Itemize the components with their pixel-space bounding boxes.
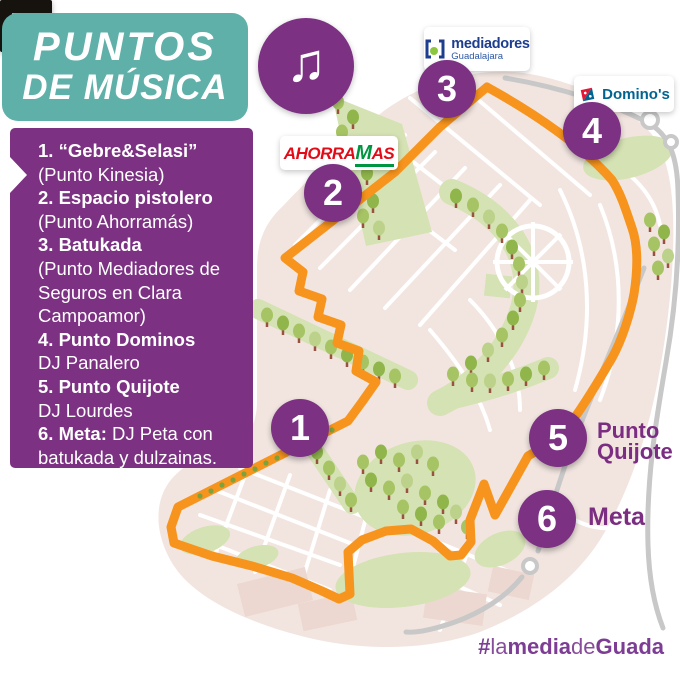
- list-item: 1. “Gebre&Selasi”: [38, 139, 239, 163]
- meta-label: Meta: [588, 503, 645, 532]
- event-hashtag: #lamediadeGuada: [478, 634, 664, 660]
- map-marker-1: 1: [271, 399, 329, 457]
- music-note-icon: ♫: [286, 36, 327, 90]
- music-note-badge: ♫: [258, 18, 354, 114]
- punto-quijote-label: Punto Quijote: [597, 420, 673, 462]
- dominos-name: Domino's: [602, 86, 670, 103]
- ahorramas-part2: M: [355, 142, 371, 164]
- list-item: (Punto Kinesia): [38, 163, 239, 187]
- map-marker-2: 2: [304, 164, 362, 222]
- ahorramas-part3: as: [372, 144, 395, 163]
- roundabout-node: [523, 559, 537, 573]
- list-item: DJ Lourdes: [38, 399, 239, 423]
- mediadores-name: mediadores: [451, 37, 529, 52]
- list-item: batukada y dulzainas.: [38, 446, 239, 470]
- list-item: (Punto Mediadores de: [38, 257, 239, 281]
- mediadores-icon: [424, 38, 446, 60]
- list-item: Campoamor): [38, 304, 239, 328]
- title-line1: PUNTOS: [2, 26, 248, 69]
- roundabout-node: [665, 136, 677, 148]
- list-item: 6. Meta: DJ Peta con: [38, 422, 239, 446]
- list-item: (Punto Ahorramás): [38, 210, 239, 234]
- map-marker-4: 4: [563, 102, 621, 160]
- list-item: 4. Punto Dominos: [38, 328, 239, 352]
- panel-notch: [10, 157, 27, 193]
- map-marker-3: 3: [418, 60, 476, 118]
- list-item: 3. Batukada: [38, 233, 239, 257]
- list-item: Seguros en Clara: [38, 281, 239, 305]
- map-marker-6: 6: [518, 490, 576, 548]
- dominos-icon: [578, 85, 597, 104]
- music-points-panel: 1. “Gebre&Selasi” (Punto Kinesia) 2. Esp…: [10, 128, 253, 468]
- mediadores-region: Guadalajara: [451, 52, 529, 62]
- ahorramas-part1: Ahorra: [284, 144, 356, 163]
- poster: PUNTOS DE MÚSICA ♫ 1. “Gebre&Selasi” (Pu…: [0, 0, 680, 680]
- title-line2: DE MÚSICA: [2, 69, 248, 108]
- title-banner: PUNTOS DE MÚSICA: [2, 13, 248, 121]
- map-marker-5: 5: [529, 409, 587, 467]
- list-item: 5. Punto Quijote: [38, 375, 239, 399]
- list-item: DJ Panalero: [38, 351, 239, 375]
- list-item: 2. Espacio pistolero: [38, 186, 239, 210]
- roundabout-node: [642, 112, 658, 128]
